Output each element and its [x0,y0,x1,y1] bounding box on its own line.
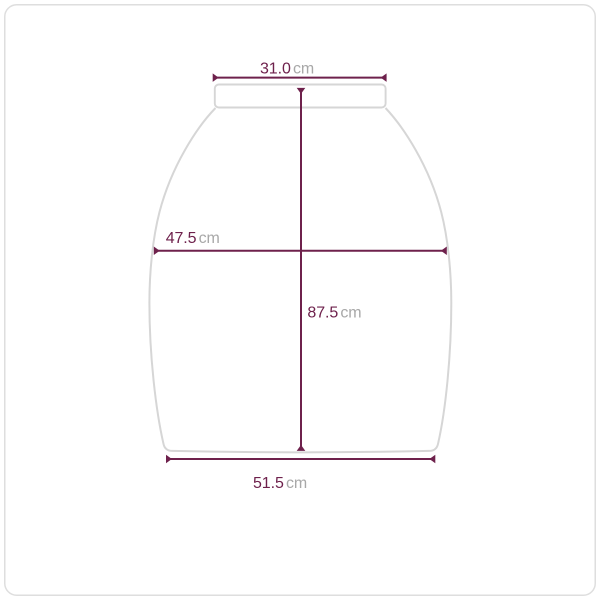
svg-text:51.5cm: 51.5cm [253,475,307,492]
svg-text:31.0cm: 31.0cm [260,60,314,77]
svg-text:47.5cm: 47.5cm [166,230,220,247]
svg-text:87.5cm: 87.5cm [307,304,361,321]
